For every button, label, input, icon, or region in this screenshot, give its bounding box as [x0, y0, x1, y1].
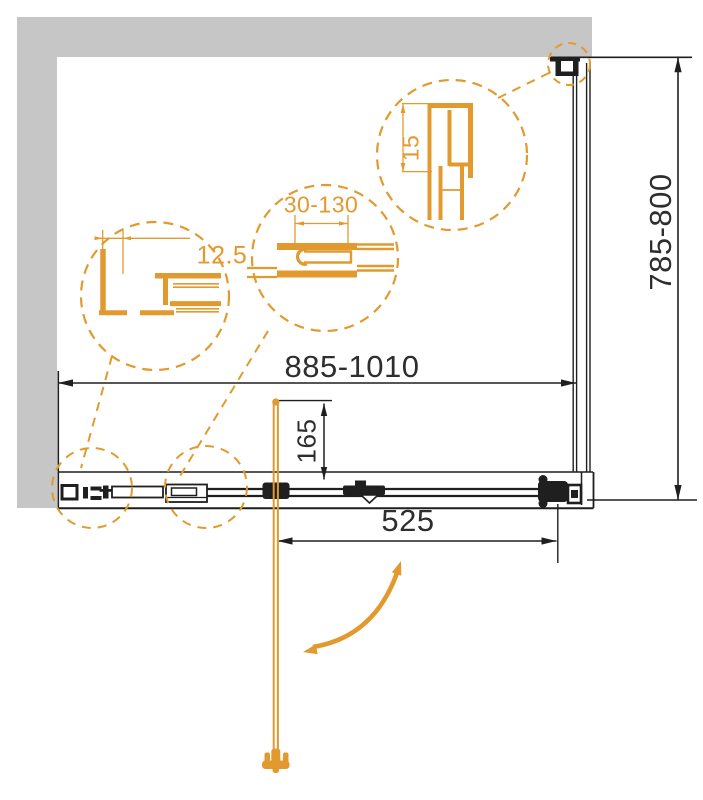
arrow-down — [674, 485, 681, 500]
door-handle — [262, 398, 290, 773]
arrow-down — [321, 467, 327, 480]
arrowhead-lower — [303, 644, 318, 654]
leader-line — [81, 356, 112, 468]
detail-adjustment-range-label: 30-130 — [284, 192, 359, 219]
arrow-right — [542, 537, 557, 544]
dim-side-depth-label: 785-800 — [643, 173, 679, 290]
arrow-up — [321, 404, 327, 417]
swing-arrow — [303, 561, 401, 654]
enclosure-frame — [58, 57, 697, 508]
detail-profile-size-label: 15 — [398, 135, 425, 162]
corner-wall-profile — [550, 57, 580, 76]
handle-knob — [262, 749, 290, 774]
dim-handle-offset-label: 165 — [292, 419, 323, 464]
dim-overall-width-label: 885-1010 — [284, 349, 419, 385]
arrowhead-upper — [392, 561, 401, 576]
linework-svg — [0, 0, 703, 800]
technical-drawing-canvas: 885-1010 785-800 165 525 12.5 30-130 15 — [0, 0, 703, 800]
arrow-left — [58, 379, 73, 386]
arrow-left — [278, 537, 293, 544]
detail-circle-adjustment — [180, 185, 398, 476]
detail-wall-profile-offset-label: 12.5 — [197, 242, 248, 271]
arrow-up — [674, 57, 681, 72]
bottom-rail-hardware — [62, 475, 581, 508]
leader-line — [498, 72, 551, 98]
dim-door-opening-label: 525 — [381, 503, 434, 539]
leader-line — [180, 331, 268, 476]
